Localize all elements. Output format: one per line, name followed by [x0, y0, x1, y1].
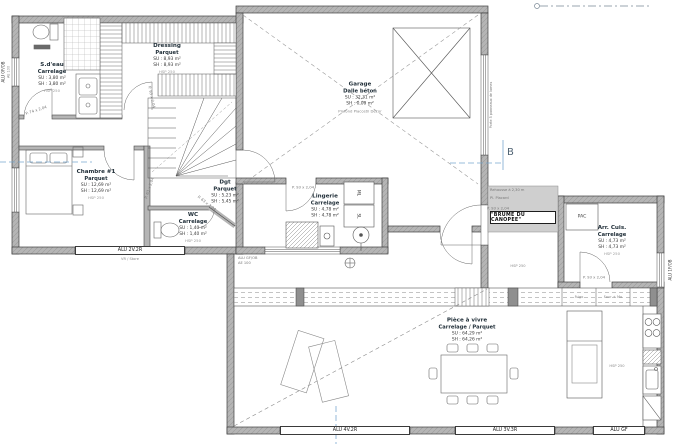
garage-door-note-text: Porte 5 panneaux de lames [489, 82, 493, 129]
room-hsp: HSP 250 [38, 89, 66, 94]
room-label-lingerie: Lingerie Carrelage SU : 4,78 m² SH : 4,7… [311, 193, 339, 218]
room-name: Dgt [211, 179, 239, 186]
room-sh: SH : 4,73 m² [598, 245, 627, 251]
room-finish: Parquet [153, 50, 181, 57]
room-name: Chambre #1 [77, 169, 116, 176]
room-finish: Carrelage [38, 69, 66, 76]
living-top-band [234, 288, 657, 306]
room-su: SU : 4,73 m² [598, 239, 627, 245]
room-sh: SH : 1,40 m² [179, 232, 207, 238]
window-sublabel-text: AE 100 [238, 261, 257, 266]
room-label-arrcuis: Arr. Cuis. Carrelage SU : 4,73 m² SH : 4… [598, 225, 627, 257]
window-label-alu-1fob: ALU 1F/OB [669, 259, 674, 280]
room-label-chambre: Chambre #1 Parquet SU : 12,69 m² SH : 12… [77, 169, 116, 201]
staircase [148, 98, 236, 178]
room-note: Plafond Placostil Décor [338, 110, 381, 115]
room-su: SU : 5,23 m² [211, 193, 239, 199]
oven-micro-label: Four + Mo [604, 295, 623, 299]
window-label-alu-gf: ALU GF [593, 426, 645, 435]
room-label-garage: Garage Dalle béton SU : 32,31 m² SH : 0,… [338, 81, 381, 114]
room-name: WC [179, 212, 207, 219]
door-label-entry: P. 93 x 2,04 [487, 206, 509, 211]
room-sh: SH : 0,00 m² [338, 101, 381, 107]
window-label-alu-0fob: ALU 0F/OB AE 100 [2, 61, 11, 82]
room-finish: Dalle béton [338, 89, 381, 96]
garage-door-note: Porte 5 panneaux de lames [489, 82, 493, 129]
room-finish: Carrelage / Parquet [438, 325, 495, 332]
fridge-label: Frigo [575, 295, 584, 299]
rehausse-note: Rehausse à 2,30 m [490, 188, 524, 193]
room-su: SU : 32,31 m² [338, 95, 381, 101]
window-label-alu-4v2r: ALU 4V.2R [280, 426, 410, 435]
model-name-plate: "BRUME DU CANOPEE" [490, 211, 556, 224]
window-label-text: ALU 4V.2R [333, 428, 357, 433]
window-label-text: ALU 2V.2R [118, 248, 142, 253]
room-sh: SH : 4,78 m² [311, 213, 339, 219]
room-name: Lingerie [311, 193, 339, 200]
wc-fixtures [154, 222, 179, 238]
hsp-hall: HSP 250 [510, 264, 525, 268]
room-label-piece-a-vivre: Pièce à vivre Carrelage / Parquet SU : 6… [438, 317, 495, 342]
window-label-text: ALU 3V.3R [493, 428, 517, 433]
room-name: Arr. Cuis. [598, 225, 627, 232]
room-name: Dressing [153, 43, 181, 50]
bed [26, 147, 83, 215]
room-label-wc: WC Carrelage SU : 1,40 m² SH : 1,40 m² H… [179, 212, 207, 244]
room-label-sdeau: S.d'eau Carrelage SU : 3,80 m² SH : 3,80… [38, 62, 66, 94]
room-su: SU : 8,93 m² [153, 57, 181, 63]
room-su: SU : 1,40 m² [179, 226, 207, 232]
section-mark-b: B [507, 147, 514, 158]
room-label-dgt: Dgt Parquet SU : 5,23 m² SH : 5,45 m² [211, 179, 239, 204]
room-finish: Parquet [77, 176, 116, 183]
room-sh: SH : 8,93 m² [153, 63, 181, 69]
pac-label: PAC [578, 215, 587, 220]
window-label-alu-3v3r: ALU 3V.3R [455, 426, 555, 435]
room-sh: SH : 12,69 m² [77, 189, 116, 195]
washer-label-ml: ML [357, 190, 362, 196]
floor-plan-canvas: S.d'eau Carrelage SU : 3,80 m² SH : 3,80… [0, 0, 687, 445]
floor-drain [345, 258, 355, 268]
room-sh: SH : 3,80 m² [38, 82, 66, 88]
door-label-arrcuis: P. 93 x 2,04 [583, 275, 605, 280]
room-su: SU : 12,69 m² [77, 183, 116, 189]
room-su: SU : 3,80 m² [38, 76, 66, 82]
hsp-piece: HSP 250 [609, 364, 624, 368]
window-sublabel-vr-store: VR / Store [121, 257, 139, 261]
window-label-text: ALU 1F/OB [669, 259, 674, 280]
window-label-text: ALU GF/OB [238, 256, 257, 261]
room-sh: SH : 5,45 m² [211, 199, 239, 205]
placard-note: Pl. Placard [490, 196, 509, 201]
window-label-alu-2v2r: ALU 2V.2R [75, 246, 185, 255]
floorplan-linework [0, 0, 687, 445]
room-hsp: HSP 250 [153, 70, 181, 75]
room-hsp: HSP 250 [598, 252, 627, 257]
room-hsp: HSP 250 [179, 239, 207, 244]
room-finish: Carrelage [598, 232, 627, 239]
room-hsp: HSP 250 [77, 196, 116, 201]
door-label-lingerie: P. 93 x 2,04 [292, 185, 314, 190]
dining-set [429, 344, 518, 404]
room-name: Pièce à vivre [438, 317, 495, 324]
room-name: S.d'eau [38, 62, 66, 69]
dryer-label-sl: SL [357, 214, 362, 219]
room-finish: Carrelage [179, 219, 207, 226]
window-sublabel-text: AE 100 [6, 61, 10, 82]
room-label-dressing: Dressing Parquet SU : 8,93 m² SH : 8,93 … [153, 43, 181, 75]
room-sh: SH : 64,26 m² [438, 337, 495, 343]
room-finish: Parquet [211, 187, 239, 194]
window-label-text: ALU GF [610, 428, 627, 433]
sofa-sketch [281, 330, 349, 402]
room-su: SU : 4,78 m² [311, 207, 339, 213]
window-label-alu-gfob: ALU GF/OB AE 100 [238, 256, 257, 265]
room-finish: Carrelage [311, 201, 339, 208]
